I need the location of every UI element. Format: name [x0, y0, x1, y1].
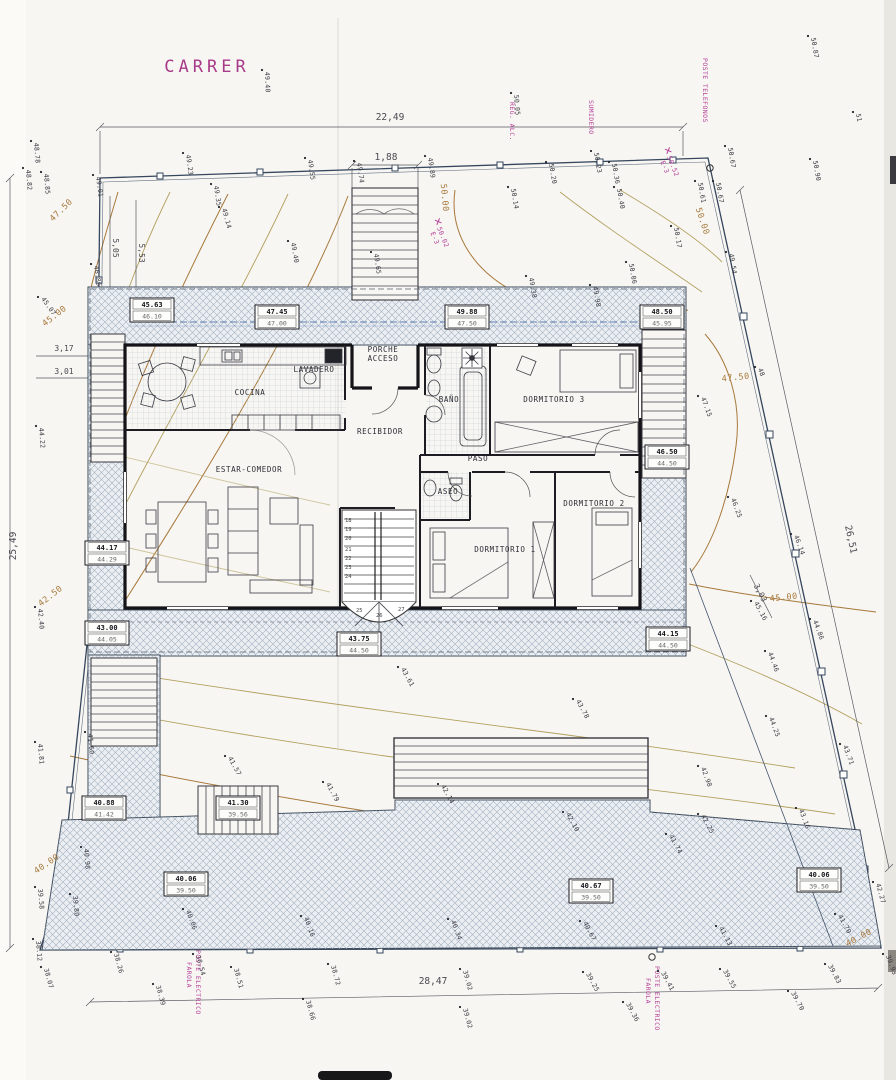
- svg-text:20: 20: [345, 536, 352, 542]
- dim-5-53: 5,53: [137, 243, 146, 262]
- fan-symbol: [462, 348, 482, 368]
- svg-text:23: 23: [345, 565, 352, 571]
- svg-text:44.17: 44.17: [96, 544, 117, 552]
- level-marker: 49.8847.50: [445, 305, 489, 329]
- svg-text:40.06: 40.06: [808, 871, 829, 879]
- room-estar-comedor: ESTAR-COMEDOR: [216, 465, 283, 474]
- dim-3-17: 3,17: [54, 344, 73, 353]
- svg-text:40.67: 40.67: [580, 882, 601, 890]
- street-label: CARRER: [164, 57, 249, 77]
- room-bano: BAÑO: [439, 395, 459, 404]
- room-cocina: COCINA: [235, 388, 266, 397]
- svg-text:39.56: 39.56: [228, 811, 248, 819]
- scan-mark: [890, 156, 896, 184]
- sumidero-label: SUMIDERO: [587, 100, 595, 135]
- poste-electrico-label: POSTE ELECTRICO: [653, 966, 661, 1031]
- level-marker: 46.5044.50: [645, 445, 689, 469]
- stairs-entry: [352, 188, 418, 300]
- room-porche: PORCHE: [368, 345, 399, 354]
- svg-text:43.75: 43.75: [348, 635, 369, 643]
- svg-text:25: 25: [356, 608, 363, 614]
- room-dormitorio3: DORMITORIO 3: [523, 395, 584, 404]
- svg-text:21: 21: [345, 547, 352, 553]
- svg-text:27: 27: [398, 607, 405, 613]
- room-dormitorio1: DORMITORIO 1: [474, 545, 535, 554]
- svg-text:39.50: 39.50: [581, 894, 601, 902]
- room-paso: PASO: [468, 454, 488, 463]
- stairs-left-upper: [91, 334, 125, 462]
- svg-text:47.45: 47.45: [266, 308, 287, 316]
- svg-text:44.15: 44.15: [657, 630, 678, 638]
- svg-text:46.50: 46.50: [656, 448, 677, 456]
- dim-3-01: 3,01: [54, 367, 73, 376]
- elevation-value: 51: [854, 113, 863, 122]
- svg-text:44.29: 44.29: [97, 556, 117, 564]
- stove: [325, 349, 342, 363]
- level-marker: 43.7544.50: [337, 632, 381, 656]
- svg-text:44.50: 44.50: [349, 647, 369, 655]
- farola-label: FAROLA: [644, 978, 652, 1004]
- svg-text:47.50: 47.50: [457, 320, 477, 328]
- scan-blot: [318, 1071, 392, 1080]
- floor-plan-drawing: 22,49 1,88 28,47 25,49 26,51 5,05 5,53 3…: [0, 0, 896, 1080]
- svg-text:48.50: 48.50: [651, 308, 672, 316]
- svg-text:40.06: 40.06: [175, 875, 196, 883]
- stairs-left-lower: [91, 658, 157, 746]
- svg-text:49.88: 49.88: [456, 308, 477, 316]
- level-marker: 40.0639.50: [164, 872, 208, 896]
- room-aseo: ASEO: [438, 487, 458, 496]
- room-lavadero: LAVADERO: [294, 365, 335, 374]
- svg-text:41.42: 41.42: [94, 811, 114, 819]
- svg-text:26: 26: [376, 613, 383, 619]
- svg-text:44.05: 44.05: [97, 636, 117, 644]
- dim-5-05: 5,05: [111, 238, 120, 257]
- svg-text:41.30: 41.30: [227, 799, 248, 807]
- svg-text:24: 24: [345, 574, 352, 580]
- svg-text:22: 22: [345, 556, 352, 562]
- site-plan-scan: 22,49 1,88 28,47 25,49 26,51 5,05 5,53 3…: [0, 0, 896, 1080]
- svg-text:19: 19: [345, 527, 352, 533]
- level-marker: 44.1744.29: [85, 541, 129, 565]
- level-marker: 45.6346.10: [130, 298, 174, 322]
- stairs-garden-wide: [394, 738, 648, 798]
- level-marker: 40.6739.50: [569, 879, 613, 903]
- dim-left: 25,49: [8, 531, 19, 560]
- level-marker: 40.8841.42: [82, 796, 126, 820]
- svg-text:39.50: 39.50: [176, 887, 196, 895]
- svg-text:44.50: 44.50: [658, 642, 678, 650]
- svg-text:39.50: 39.50: [809, 883, 829, 891]
- room-recibidor: RECIBIDOR: [357, 427, 403, 436]
- level-marker: 47.4547.00: [255, 305, 299, 329]
- svg-text:47.00: 47.00: [267, 320, 287, 328]
- svg-text:40.88: 40.88: [93, 799, 114, 807]
- dim-top: 22,49: [376, 112, 405, 123]
- dim-bottom: 28,47: [419, 976, 448, 987]
- svg-text:45.95: 45.95: [652, 320, 672, 328]
- svg-text:45.63: 45.63: [141, 301, 162, 309]
- svg-text:18: 18: [345, 518, 352, 524]
- svg-text:43.00: 43.00: [96, 624, 117, 632]
- dim-entry-width: 1,88: [375, 152, 398, 163]
- level-marker: 40.0639.50: [797, 868, 841, 892]
- room-acceso: ACCESO: [368, 354, 399, 363]
- level-marker: 48.5045.95: [640, 305, 684, 329]
- poste-telefonos-label: POSTE TELEFONOS: [701, 58, 709, 123]
- farola-label: FAROLA: [185, 962, 193, 988]
- level-marker: 44.1544.50: [646, 627, 690, 651]
- svg-text:46.10: 46.10: [142, 313, 162, 321]
- level-marker: 41.3039.56: [216, 796, 260, 820]
- svg-text:44.50: 44.50: [657, 460, 677, 468]
- elevation-value: 49.40: [263, 72, 272, 93]
- room-dormitorio2: DORMITORIO 2: [563, 499, 624, 508]
- level-marker: 43.0044.05: [85, 621, 129, 645]
